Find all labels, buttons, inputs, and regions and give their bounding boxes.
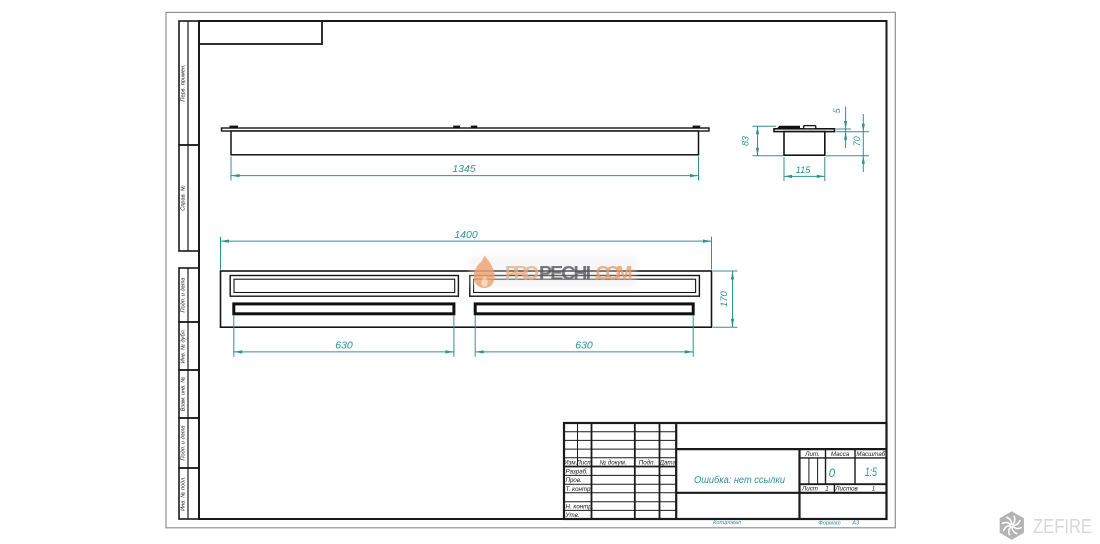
svg-text:Лит.: Лит. bbox=[804, 451, 820, 458]
svg-text:Лист: Лист bbox=[801, 486, 818, 493]
svg-text:Т. контр.: Т. контр. bbox=[566, 486, 593, 493]
svg-text:630: 630 bbox=[335, 340, 353, 352]
svg-text:70: 70 bbox=[852, 136, 862, 146]
svg-text:1:5: 1:5 bbox=[865, 467, 877, 479]
svg-text:Лист: Лист bbox=[576, 459, 593, 466]
svg-text:Копировал: Копировал bbox=[713, 520, 742, 526]
svg-text:.COM: .COM bbox=[595, 263, 633, 285]
svg-text:Подп. и дата: Подп. и дата bbox=[180, 277, 186, 312]
svg-text:Подп. и дата: Подп. и дата bbox=[180, 425, 186, 460]
svg-text:170: 170 bbox=[719, 290, 730, 307]
svg-text:А3: А3 bbox=[851, 521, 860, 527]
svg-text:Справ. №: Справ. № bbox=[180, 185, 186, 210]
svg-text:Масса: Масса bbox=[831, 451, 850, 458]
svg-text:Ошибка: нет ссылки: Ошибка: нет ссылки bbox=[694, 474, 785, 486]
svg-text:Изм.: Изм. bbox=[564, 459, 577, 466]
svg-text:630: 630 bbox=[575, 340, 593, 352]
svg-text:PRO: PRO bbox=[505, 263, 539, 285]
svg-text:Н. контр.: Н. контр. bbox=[566, 504, 594, 511]
svg-text:PECHI: PECHI bbox=[539, 263, 591, 285]
svg-text:115: 115 bbox=[796, 165, 812, 175]
svg-text:Перв. примен.: Перв. примен. bbox=[180, 64, 186, 101]
svg-text:5: 5 bbox=[832, 108, 842, 113]
svg-text:Формат: Формат bbox=[818, 521, 841, 527]
svg-text:Инв. № дубл.: Инв. № дубл. bbox=[180, 329, 186, 363]
svg-text:Утв.: Утв. bbox=[565, 512, 580, 519]
svg-text:83: 83 bbox=[741, 136, 751, 146]
svg-text:Масштаб: Масштаб bbox=[856, 451, 885, 458]
svg-text:Подп.: Подп. bbox=[639, 459, 655, 466]
svg-text:1: 1 bbox=[872, 486, 875, 493]
svg-text:№ докум.: № докум. bbox=[599, 459, 626, 466]
svg-text:1345: 1345 bbox=[452, 163, 476, 175]
svg-text:1: 1 bbox=[825, 486, 828, 493]
svg-text:0: 0 bbox=[829, 468, 836, 480]
svg-text:Листов: Листов bbox=[834, 486, 858, 493]
svg-text:Дата: Дата bbox=[659, 459, 677, 466]
svg-text:ZEFIRE: ZEFIRE bbox=[1033, 516, 1092, 538]
svg-text:Взам. инв. №: Взам. инв. № bbox=[180, 377, 186, 412]
svg-text:Разраб.: Разраб. bbox=[566, 468, 588, 475]
svg-text:Инв. № подл.: Инв. № подл. bbox=[180, 476, 186, 511]
svg-text:Пров.: Пров. bbox=[566, 477, 582, 484]
svg-text:1400: 1400 bbox=[454, 229, 478, 241]
